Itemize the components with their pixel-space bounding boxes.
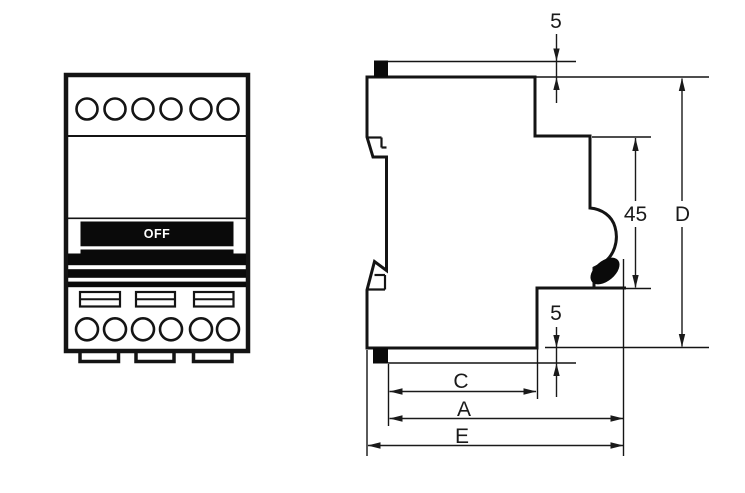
- off-state-label: OFF: [144, 227, 171, 241]
- arrowhead-left: [390, 415, 403, 421]
- breaker-dimension-drawing: OFF: [0, 0, 745, 493]
- front-band: [68, 254, 246, 266]
- screw-slot: [136, 292, 175, 307]
- front-band: [68, 269, 246, 278]
- dim-label-d: D: [675, 203, 690, 226]
- dimension-total-depth: D: [675, 78, 690, 347]
- dim-label-a: A: [457, 398, 471, 421]
- technical-drawing-page: OFF: [0, 0, 745, 493]
- arrowhead-down: [632, 275, 638, 288]
- screw-slot: [194, 292, 234, 307]
- dimension-width-c: C: [390, 370, 537, 395]
- dimension-bottom-rail-offset: 5: [550, 302, 562, 397]
- arrowhead-down: [553, 335, 559, 348]
- dimension-top-rail-offset: 5: [550, 10, 562, 103]
- arrowhead-up: [679, 78, 685, 91]
- arrowhead-left: [368, 442, 381, 448]
- arrowhead-up: [632, 138, 638, 151]
- dimension-width-e: E: [368, 425, 624, 449]
- arrowhead-down: [679, 334, 685, 347]
- dim-label-45: 45: [624, 203, 647, 226]
- dimension-width-a: A: [390, 398, 624, 422]
- arrowhead-left: [390, 388, 403, 394]
- rail-tab-bottom: [373, 348, 388, 364]
- arrowhead-up: [553, 78, 559, 91]
- breaker-side-profile: [367, 77, 616, 348]
- arrowhead-right: [611, 442, 624, 448]
- side-view: [367, 61, 709, 457]
- screw-slot: [80, 292, 120, 307]
- front-view: OFF: [66, 75, 248, 362]
- rail-tab-top: [374, 61, 388, 78]
- dim-label-bottom-5: 5: [550, 302, 562, 325]
- arrowhead-down: [553, 49, 559, 62]
- dim-label-top-5: 5: [550, 10, 562, 33]
- arrowhead-right: [524, 388, 537, 394]
- screw-slots: [80, 292, 234, 307]
- dimension-handle-recess: 45: [624, 138, 647, 288]
- arrowhead-up: [553, 364, 559, 377]
- arrowhead-right: [611, 415, 624, 421]
- toggle-slit: [81, 246, 234, 249]
- front-band: [68, 282, 246, 288]
- dim-label-c: C: [453, 370, 468, 393]
- dim-label-e: E: [455, 425, 469, 448]
